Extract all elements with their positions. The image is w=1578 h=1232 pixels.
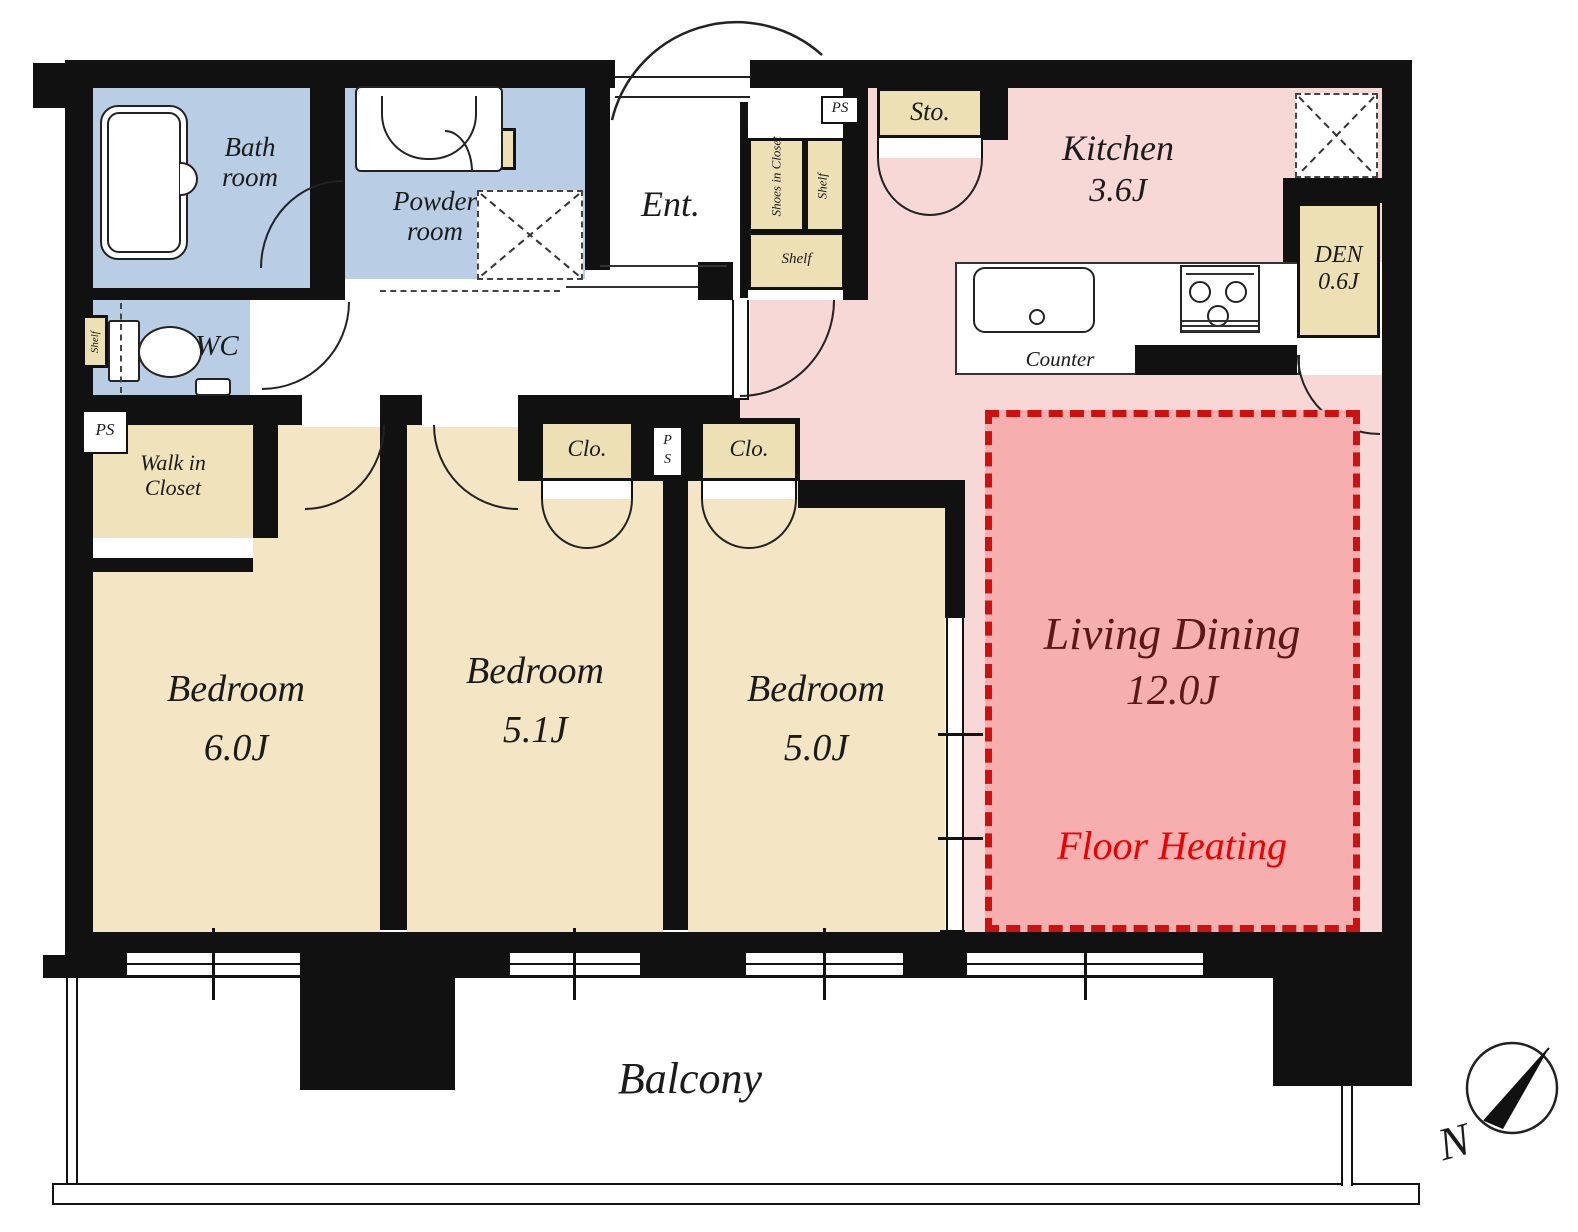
plan-overlay-graphics [0,0,1578,1232]
compass-needle-edge [1484,1048,1549,1121]
floor-plan: Walk in Closet Clo. P S Clo. Sto. DEN 0.… [0,0,1578,1232]
entrance-door-arc [612,22,822,120]
